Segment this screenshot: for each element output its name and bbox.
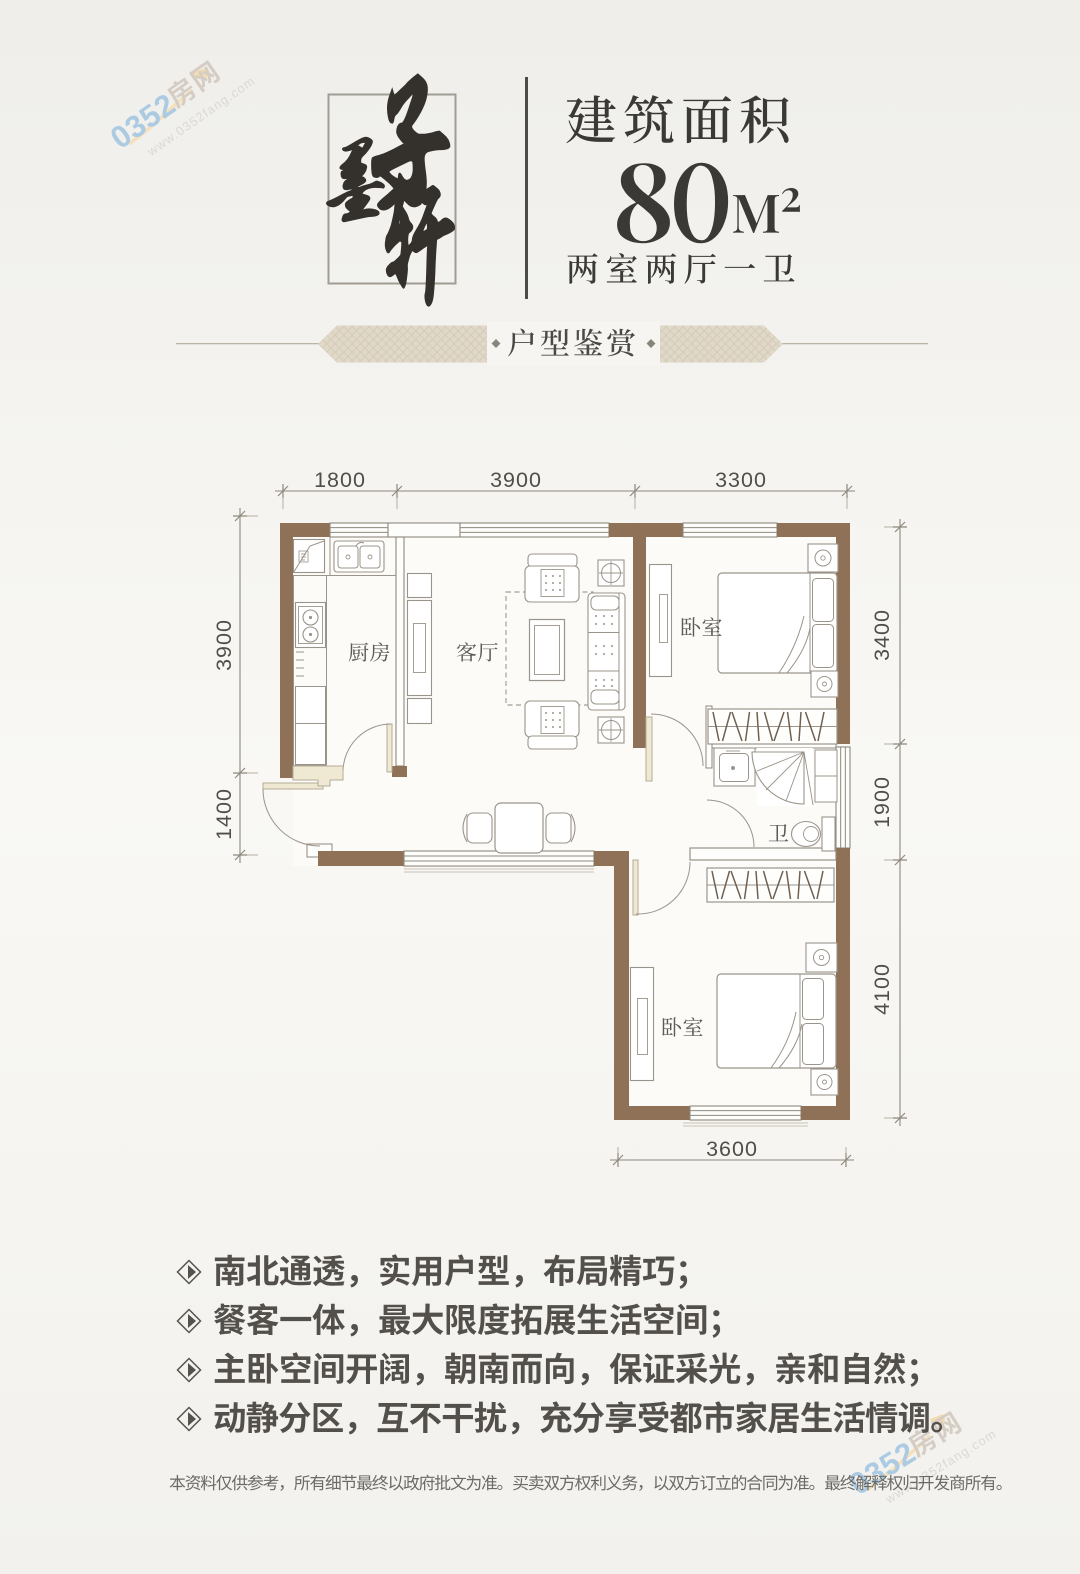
svg-text:3400: 3400 <box>870 609 894 661</box>
svg-text:3300: 3300 <box>715 468 767 492</box>
svg-text:1900: 1900 <box>870 776 894 828</box>
svg-text:3900: 3900 <box>212 619 236 671</box>
svg-text:3600: 3600 <box>706 1137 758 1161</box>
svg-text:1800: 1800 <box>314 468 366 492</box>
svg-text:3900: 3900 <box>490 468 542 492</box>
svg-text:4100: 4100 <box>870 963 894 1015</box>
svg-text:1400: 1400 <box>212 788 236 840</box>
